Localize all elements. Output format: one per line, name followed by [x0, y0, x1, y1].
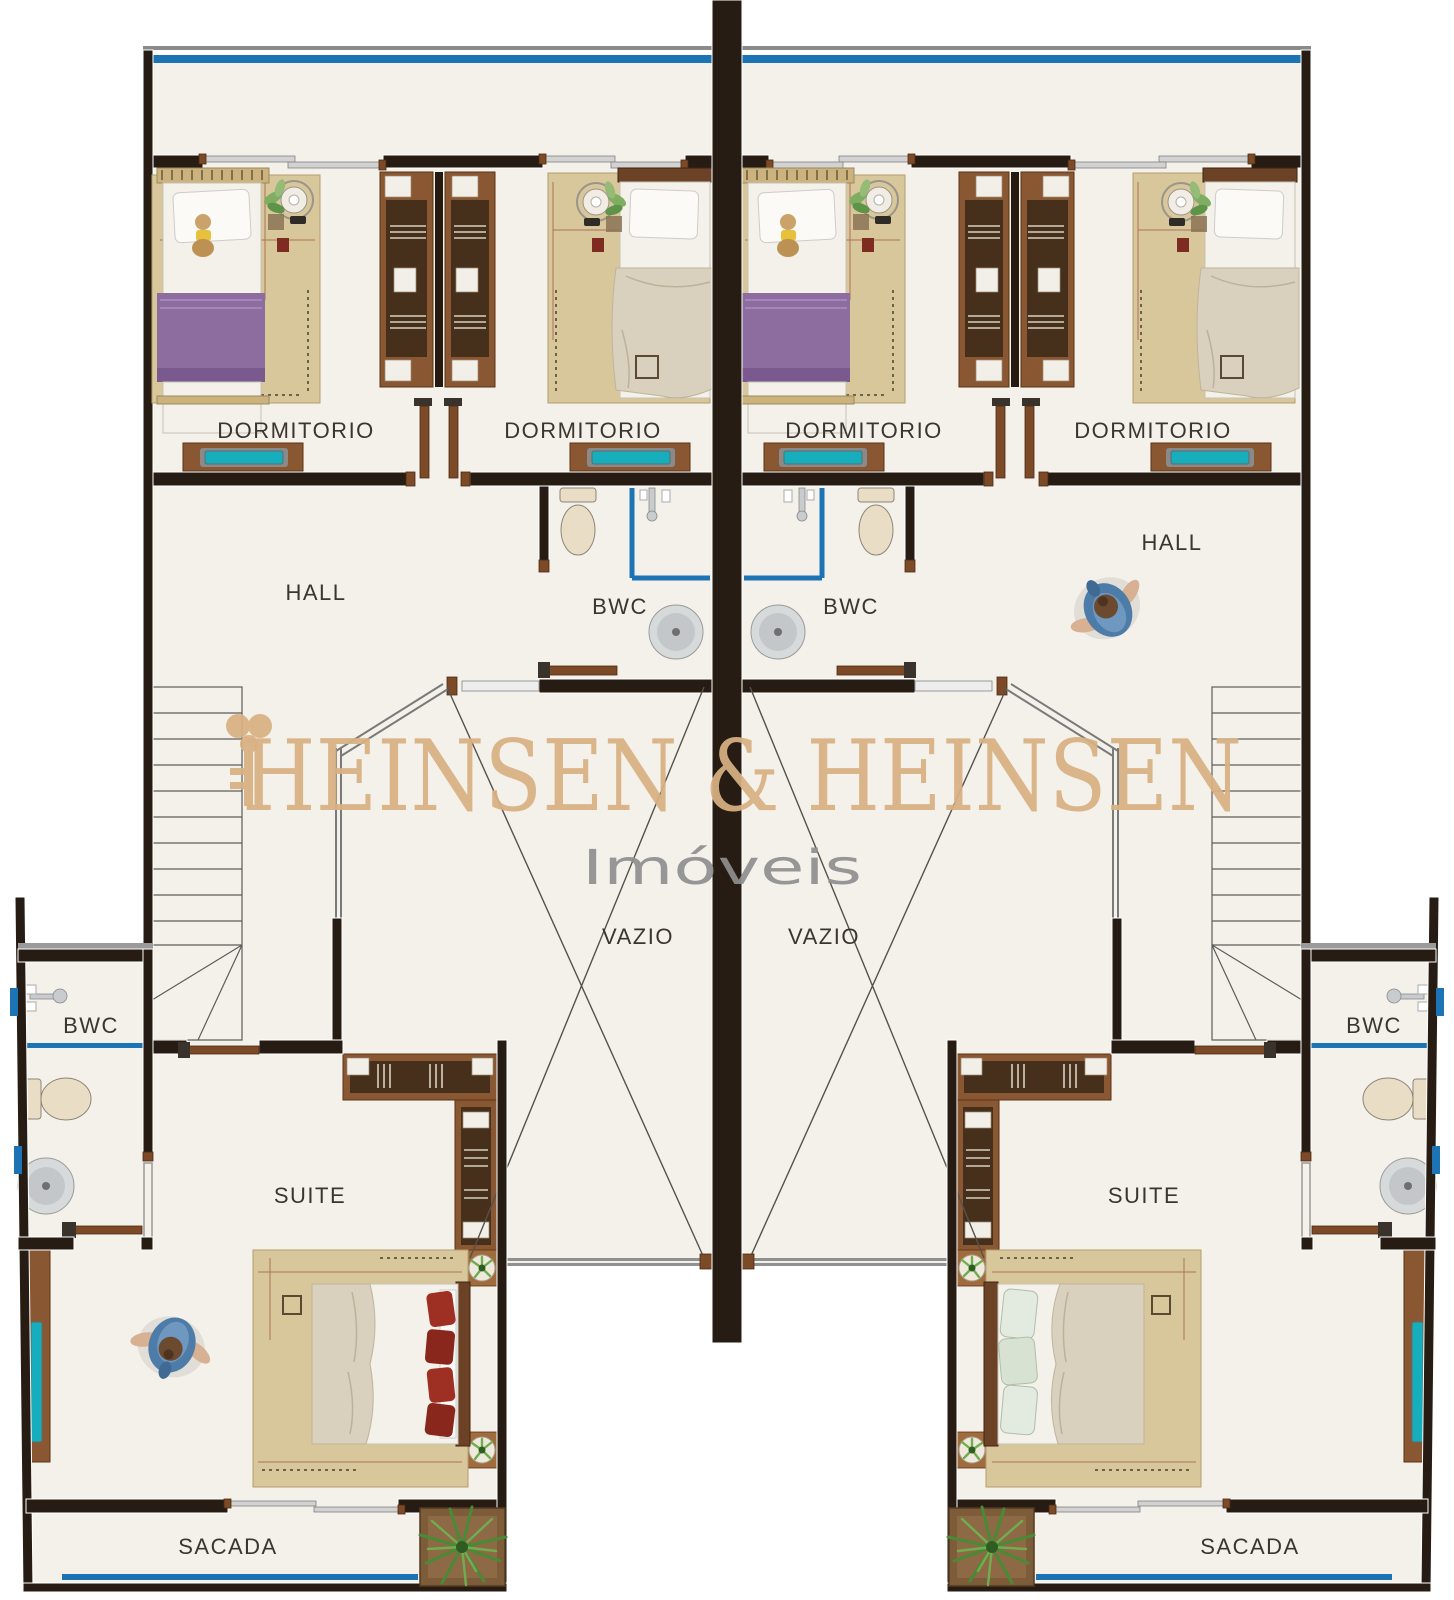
window-rail [153, 55, 712, 63]
label-sacada-left: SACADA [178, 1534, 277, 1559]
desk [570, 443, 690, 471]
label-bwc-suite-right: BWC [1346, 1013, 1402, 1038]
window [14, 1146, 22, 1174]
room-hall-bwc-band [153, 486, 712, 693]
shower-icon [20, 1043, 143, 1048]
toilet-icon [561, 505, 595, 555]
label-hall-right: HALL [1141, 530, 1202, 555]
suite-bed-left [253, 1250, 470, 1487]
closet-pair [380, 172, 495, 387]
floor-plan-page: HEINSEN & HEINSEN Imóveis DORMITORIO DOR… [0, 0, 1454, 1600]
suite-bed-right [984, 1250, 1201, 1487]
label-suite-right: SUITE [1108, 1183, 1180, 1208]
staircase [152, 687, 242, 1040]
label-dormitorio-2-left: DORMITORIO [504, 418, 662, 443]
label-dormitorio-1-right: DORMITORIO [785, 418, 943, 443]
party-wall [712, 0, 742, 1343]
shower-head-icon [649, 488, 655, 512]
desk [183, 443, 303, 471]
label-bwc-upper-right: BWC [823, 594, 879, 619]
door [547, 666, 617, 675]
label-sacada-right: SACADA [1200, 1534, 1299, 1559]
single-bed-beige [548, 168, 714, 403]
label-bwc-upper-left: BWC [592, 594, 648, 619]
label-dormitorio-2-right: DORMITORIO [1074, 418, 1232, 443]
sage-pillows [998, 1288, 1038, 1435]
floor-plan-drawing: HEINSEN & HEINSEN Imóveis DORMITORIO DOR… [0, 0, 1454, 1600]
label-hall-left: HALL [285, 580, 346, 605]
label-suite-left: SUITE [274, 1183, 346, 1208]
watermark-title: HEINSEN & HEINSEN [242, 720, 1242, 834]
label-bwc-suite-left: BWC [63, 1013, 119, 1038]
room-terrace [153, 62, 712, 155]
watermark-subtitle: Imóveis [582, 840, 862, 896]
nightstand [466, 1432, 498, 1468]
plush-toy [195, 214, 211, 230]
door [74, 1226, 142, 1234]
door [187, 1046, 259, 1054]
toilet-icon [560, 488, 596, 502]
label-vazio-right: VAZIO [788, 924, 860, 949]
tv-panel [31, 1322, 42, 1442]
window [10, 988, 18, 1016]
planter [420, 1507, 506, 1586]
label-vazio-left: VAZIO [602, 924, 674, 949]
toilet-icon [41, 1078, 91, 1120]
balcony-rail [62, 1574, 418, 1580]
rug-motif [277, 238, 289, 252]
label-dormitorio-1-left: DORMITORIO [217, 418, 375, 443]
